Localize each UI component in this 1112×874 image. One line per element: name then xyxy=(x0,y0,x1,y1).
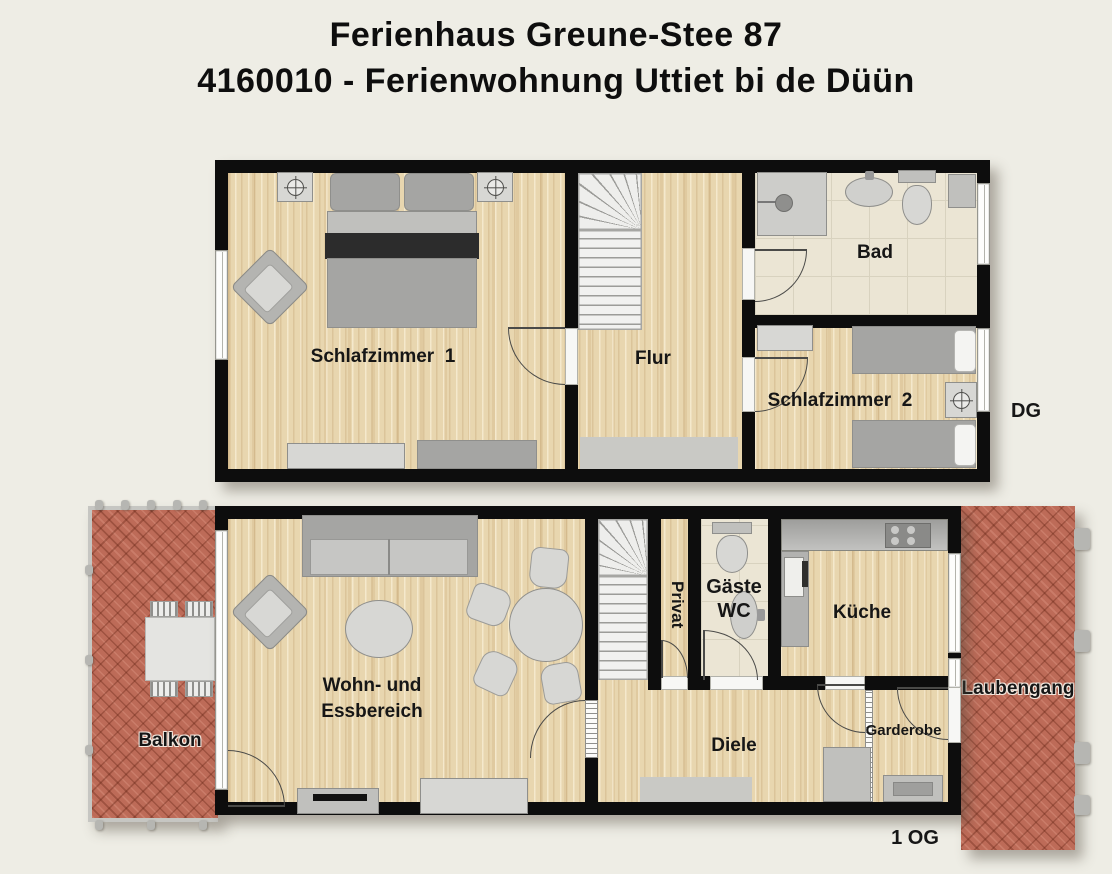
railing-post xyxy=(199,500,207,510)
floor-mat xyxy=(640,777,752,802)
glass-door xyxy=(585,700,598,758)
room-label-gaeste-line1: Gäste xyxy=(679,575,789,599)
toilet-bowl xyxy=(716,535,748,573)
sideboard xyxy=(420,778,528,814)
balcony-chair xyxy=(150,601,178,617)
door-leaf xyxy=(817,684,865,686)
toilet-tank xyxy=(712,522,752,534)
bed-pillow xyxy=(954,330,976,372)
railing-post xyxy=(147,820,155,830)
room-label-balkon: Balkon xyxy=(118,728,222,754)
coffee-table xyxy=(345,600,413,658)
railing-post xyxy=(95,500,103,510)
shower-head xyxy=(775,194,793,212)
room-label-schlafzimmer1: Schlafzimmer 1 xyxy=(283,344,483,370)
floor-plan-dg: Schlafzimmer 1 Flur Bad Schlafzimmer 2 xyxy=(215,160,990,482)
door-leaf xyxy=(897,687,948,689)
door-leaf xyxy=(228,805,285,807)
tv-stand xyxy=(297,788,379,814)
toilet-tank xyxy=(898,170,936,183)
sofa-seam xyxy=(388,539,390,575)
staircase-straight xyxy=(578,230,642,330)
window-band xyxy=(215,530,228,790)
room-label-gaeste-line2: WC xyxy=(679,599,789,623)
armchair-seat xyxy=(243,263,294,314)
page-title: Ferienhaus Greune-Stee 87 4160010 - Feri… xyxy=(56,12,1056,104)
dresser xyxy=(287,443,405,469)
wall-segment xyxy=(742,173,755,469)
floor-plan-og: Balkon Laubengang xyxy=(85,495,1095,865)
room-label-schlafzimmer2: Schlafzimmer 2 xyxy=(735,388,945,414)
door-leaf xyxy=(755,357,808,359)
door-jamb xyxy=(742,248,755,300)
wall-segment xyxy=(585,519,598,802)
hall-sideboard xyxy=(823,747,871,802)
door-leaf xyxy=(755,249,807,251)
dining-table xyxy=(509,588,583,662)
title-line2: 4160010 - Ferienwohnung Uttiet bi de Düü… xyxy=(56,58,1056,104)
dining-chair xyxy=(528,546,570,590)
room-label-wohnbereich: Wohn- undEssbereich xyxy=(272,673,472,725)
title-line1: Ferienhaus Greune-Stee 87 xyxy=(56,12,1056,58)
staircase-winder xyxy=(578,173,642,230)
tv xyxy=(313,794,367,801)
stove-burner xyxy=(907,526,915,534)
floor-tag-og: 1 OG xyxy=(855,826,975,850)
railing-post xyxy=(147,500,155,510)
wall-segment xyxy=(648,519,661,678)
room-label-flur: Flur xyxy=(603,346,703,372)
arcade-post xyxy=(1074,630,1090,652)
balcony-chair xyxy=(185,601,213,617)
room-label-laubengang: Laubengang xyxy=(951,676,1085,702)
room-label-wohnbereich-line1: Wohn- und xyxy=(272,673,472,699)
door-leaf xyxy=(508,327,565,329)
window xyxy=(948,553,961,653)
stove-burner xyxy=(907,537,915,545)
bed-pillow xyxy=(954,424,976,466)
door-jamb xyxy=(565,328,578,385)
staircase-straight xyxy=(598,576,648,680)
bed-pillow xyxy=(330,173,400,211)
bed-pillow xyxy=(404,173,474,211)
window xyxy=(215,250,228,360)
ceiling-lamp-icon xyxy=(287,179,304,196)
balcony-table xyxy=(145,617,215,681)
wardrobe-bench-seat xyxy=(893,782,933,796)
kitchen-faucet xyxy=(802,561,808,587)
railing-post xyxy=(85,565,93,575)
balcony-chair xyxy=(185,681,213,697)
stove-burner xyxy=(891,537,899,545)
railing-post xyxy=(199,820,207,830)
bed-sheet xyxy=(327,211,477,234)
railing-post xyxy=(95,820,103,830)
arcade-post xyxy=(1074,528,1090,550)
window xyxy=(977,328,990,412)
room-label-diele: Diele xyxy=(674,733,794,759)
arcade-post xyxy=(1074,742,1090,764)
nightstand xyxy=(277,172,313,202)
room-label-gaeste-wc: GästeWC xyxy=(679,575,789,623)
floor-mat xyxy=(580,437,738,469)
bathroom-sink xyxy=(845,177,893,207)
railing-post xyxy=(85,745,93,755)
nightstand xyxy=(477,172,513,202)
double-bed xyxy=(327,258,477,328)
ceiling-lamp-icon xyxy=(487,179,504,196)
window xyxy=(948,658,961,688)
dresser xyxy=(757,325,813,351)
dining-chair xyxy=(539,660,583,706)
room-label-wohnbereich-line2: Essbereich xyxy=(272,699,472,725)
dresser xyxy=(417,440,537,469)
wall-segment xyxy=(565,173,578,469)
nightstand xyxy=(945,382,977,418)
room-label-bad: Bad xyxy=(825,240,925,266)
balcony-chair xyxy=(150,681,178,697)
window xyxy=(977,183,990,265)
armchair-seat xyxy=(243,588,294,639)
ceiling-lamp-icon xyxy=(953,392,970,409)
bathroom-cabinet xyxy=(948,174,976,208)
stove-burner xyxy=(891,526,899,534)
door-leaf xyxy=(703,630,705,680)
railing-post xyxy=(173,500,181,510)
building-walls: Wohn- undEssbereich Privat GästeWC Küche… xyxy=(215,506,961,815)
railing-post xyxy=(121,500,129,510)
room-label-kueche: Küche xyxy=(802,600,922,626)
toilet-bowl xyxy=(902,185,932,225)
floor-tag-dg: DG xyxy=(994,399,1058,423)
sink-faucet xyxy=(865,171,874,180)
arcade-post xyxy=(1074,795,1090,815)
staircase-winder xyxy=(598,519,648,576)
railing-post xyxy=(85,655,93,665)
room-label-garderobe: Garderobe xyxy=(851,722,956,740)
bed-blanket-dark xyxy=(325,233,479,259)
door-jamb xyxy=(661,676,688,690)
floorplan-page: Ferienhaus Greune-Stee 87 4160010 - Feri… xyxy=(0,0,1112,874)
